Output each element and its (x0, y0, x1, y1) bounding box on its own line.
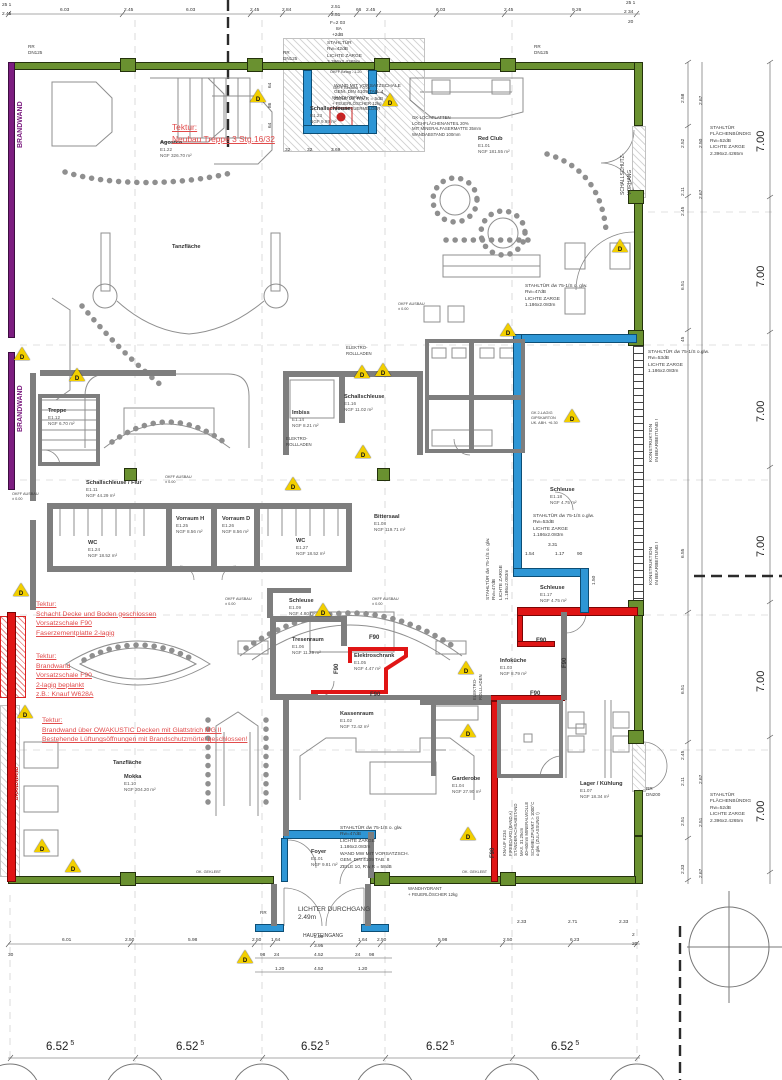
room-label: ImbissE1.14NGF 8.21 m² (292, 410, 319, 429)
dimension-label: 25 1 (626, 1, 635, 6)
dimension-label: 1.17 (555, 552, 564, 557)
grid-dimension-label: 7.00 (755, 401, 767, 422)
dimension-label: 2.51 (699, 818, 704, 827)
misc-label: OKFF Bestand + 0.06 (333, 86, 370, 91)
warning-triangle-icon: D (14, 347, 30, 361)
dimension-label: 1.20 (358, 967, 367, 972)
dimension-label: 98 (260, 953, 265, 958)
misc-label: RRDN200 (646, 786, 660, 798)
warning-triangle-icon: D (237, 950, 253, 964)
warning-triangle-icon: D (69, 368, 85, 382)
room-label: Tanzfläche (113, 760, 142, 767)
warning-triangle-icon: D (375, 363, 391, 377)
dimension-label: 2.50 (377, 938, 386, 943)
misc-label: BRANDWAND (16, 385, 25, 432)
dimension-label: 66 (356, 8, 361, 13)
grid-dimension-label: 7.00 (755, 801, 767, 822)
dimension-label: 1.64 (271, 938, 280, 943)
dimension-label: 2.45 (681, 207, 686, 216)
misc-label: KONSTRUKTIONIN BEARBEITUNG ! (649, 419, 661, 462)
dimension-label: 2.51 (331, 5, 340, 10)
f90-label: F90 (369, 635, 379, 641)
dimension-label: 2.52 (681, 139, 686, 148)
dimension-label: 2.71 (568, 920, 577, 925)
dimension-label: 64 (268, 123, 273, 128)
door-spec-note: STAHLTÜR dw 75-1/S o. glw.Rw=47dBLICHTE … (340, 826, 409, 871)
dimension-label: 2.67 (699, 96, 704, 105)
misc-label: ELEKTRO-ROLLLADEN (472, 674, 483, 700)
grid-span-label: 6.52 5 (551, 1040, 579, 1053)
dimension-label: 9.26 (572, 8, 581, 13)
dimension-label: 2.51 (331, 13, 340, 18)
misc-label: GK 2-LAGIGGIPSKARTONUK. ABH. +6.30 (531, 411, 558, 426)
room-label: TreppeE1.12NGF 6.70 m² (48, 408, 75, 427)
misc-label: BRANDWAND (14, 767, 21, 800)
misc-label: WANDHYDRANT+ FEUERLÖSCHER 12kg (408, 886, 458, 897)
dimension-label: 2.45 (250, 8, 259, 13)
tektur-note: Tektur:Brandwand über OWAKUSTIC Decken m… (42, 716, 247, 745)
dimension-label: 32 (307, 148, 312, 153)
warning-triangle-icon: D (458, 661, 474, 675)
door-spec-note: STAHLTÜR dw 75-1/S o.glw.Rw=53dBLICHTE Z… (648, 350, 709, 376)
room-label: SchleuseE1.18NGF 4.75 m² (550, 487, 577, 506)
warning-triangle-icon: D (13, 583, 29, 597)
dimension-label: 2.45 (366, 8, 375, 13)
room-label: Red ClubE1.01NGF 181.55 m² (478, 136, 510, 155)
room-label: SchleuseE1.17NGF 4.75 m² (540, 585, 567, 604)
labels-layer: AgosteaE1.22NGF 326.70 m²Red ClubE1.01NG… (0, 0, 782, 1080)
dimension-label: 6.01 (62, 938, 71, 943)
room-label: Schallschleuse / FlurE1.11NGF 44.29 m² (86, 480, 142, 499)
dimension-label: 2.45 (681, 751, 686, 760)
dimension-label: 1.50 (592, 576, 597, 585)
dimension-label: 2.33 (517, 920, 526, 925)
dimension-label: 2.50 (252, 938, 261, 943)
warning-triangle-icon: D (34, 839, 50, 853)
dimension-label: 64 (268, 83, 273, 88)
dimension-label: 32 (285, 148, 290, 153)
tektur-note: Tektur:Neubau Treppe 3 Stg.16/32 (172, 122, 275, 146)
f90-label: F90 (562, 658, 568, 668)
dimension-label: 2.67 (699, 190, 704, 199)
misc-label: RRDN125 (534, 44, 548, 56)
room-label: InfokücheE1.03NGF 8.79 m² (500, 658, 527, 677)
warning-triangle-icon: D (382, 93, 398, 107)
misc-label: SCHALLSCHUTZ-VORHANG (620, 154, 633, 195)
f90-label: F90 (530, 691, 540, 697)
warning-triangle-icon: D (355, 445, 371, 459)
room-label: GarderobeE1.04NGF 27.90 m² (452, 776, 481, 795)
warning-triangle-icon: D (315, 603, 331, 617)
dimension-label: 98 (369, 953, 374, 958)
f90-label: F90 (536, 638, 546, 644)
dimension-label: 8A (336, 27, 342, 32)
dimension-label: 3.69 (331, 148, 340, 153)
misc-label: OKFF Belag - 1.20 (330, 70, 362, 75)
dimension-label: 86 (268, 103, 273, 108)
dimension-label: 1.54 (525, 552, 534, 557)
dimension-label: 6.51 (681, 281, 686, 290)
dimension-label: 2.51 (681, 817, 686, 826)
dimension-label: 6.03 (436, 8, 445, 13)
dimension-label: 3.31 (548, 543, 557, 548)
dimension-label: 24 (274, 953, 279, 958)
misc-label: ELEKTRO-ROLLLADEN (286, 436, 312, 447)
dimension-label: 30 (8, 953, 13, 958)
warning-triangle-icon: D (460, 827, 476, 841)
misc-label: OKFF AUSBAU± 0.00 (165, 475, 192, 485)
misc-label: GK-LOCHPLATTENLOCHFLÄCHENANTEIL 20%MIT M… (412, 115, 481, 137)
door-spec-note: STAHLTÜR dw 75-1/S o. glw.Rw=47dBLICHTE … (525, 284, 587, 310)
dimension-label: 25 1 (2, 3, 11, 8)
room-label: BittersaalE1.08NGF 119.71 m² (374, 514, 405, 533)
misc-label: OKFF AUSBAU± 0.00 (398, 302, 425, 312)
dimension-label: 2.67 (699, 775, 704, 784)
grid-dimension-label: 7.00 (755, 131, 767, 152)
dimension-label: 2.11 (681, 777, 686, 786)
dimension-label: 6.51 (681, 685, 686, 694)
dimension-label: 1.20 (275, 967, 284, 972)
tektur-note: Tektur:Schacht Decke und Boden geschloss… (36, 600, 156, 638)
misc-label: OKFF AUSBAU± 0.00 (225, 597, 252, 607)
misc-label: KNAUF K234FIREBOARD (BAND A)STÄNDERACHSA… (502, 802, 541, 856)
room-label: TresenraumE1.06NGF 11.29 m² (292, 637, 324, 656)
grid-dimension-label: 7.00 (755, 536, 767, 557)
door-spec-note: STAHLTÜR dw 75-1/S o. glw.Rw=47dBLICHTE … (486, 538, 512, 600)
grid-span-label: 6.52 5 (176, 1040, 204, 1053)
dimension-label: 20 (628, 20, 633, 25)
grid-span-label: 6.52 5 (301, 1040, 329, 1053)
dimension-label: 2.84 (282, 8, 291, 13)
room-label: SchleuseE1.09NGF 4.80 m² (289, 598, 316, 617)
dimension-label: 2.33 (619, 920, 628, 925)
dimension-label: 5.98 (188, 938, 197, 943)
dimension-label: +2dB (332, 33, 343, 38)
misc-label: KONSTRUKTIONIN BEARBEITUNG ! (649, 542, 661, 585)
grid-dimension-label: 7.00 (755, 266, 767, 287)
warning-triangle-icon: D (354, 365, 370, 379)
dimension-label: 2.45 (2, 12, 11, 17)
dimension-label: 3.95 (314, 944, 323, 949)
dimension-label: 1.64 (358, 938, 367, 943)
warning-triangle-icon: D (65, 859, 81, 873)
room-label: Vorraum HE1.25NGF 8.56 m² (176, 516, 204, 535)
dimension-label: 6.03 (60, 8, 69, 13)
dimension-label: 20 (632, 942, 637, 947)
room-label: FoyerE1.01NGF 9.81 m² (311, 849, 338, 868)
grid-span-label: 6.52 5 (46, 1040, 74, 1053)
room-label: Vorraum DE1.26NGF 8.56 m² (222, 516, 250, 535)
misc-label: WANDHYDRANT+ FEUERLÖSCHER 12kg+ HANDFEUE… (332, 95, 382, 112)
warning-triangle-icon: D (285, 477, 301, 491)
door-spec-note: STAHLTÜRRw=42dBLICHTE ZARGE2.396x2.4265m (327, 41, 362, 67)
warning-triangle-icon: D (500, 323, 516, 337)
misc-label: ELEKTRO-ROLLLADEN (346, 345, 372, 356)
dimension-label: 2.67 (699, 869, 704, 878)
door-spec-note: STAHLTÜR dw 75-1/S o.glw.Rw=53dBLICHTE Z… (533, 514, 594, 540)
dimension-label: 2.69 (314, 935, 323, 940)
room-label: WCE1.27NGF 18.52 m² (296, 538, 325, 557)
misc-label: RR (260, 910, 267, 916)
warning-triangle-icon: D (612, 239, 628, 253)
misc-label: LICHTER DURCHGANG2.49m (298, 906, 370, 923)
f90-label: F90 (490, 848, 496, 858)
dimension-label: 5.98 (438, 938, 447, 943)
dimension-label: 45 (681, 337, 686, 342)
dimension-label: 2.11 (681, 187, 686, 196)
dimension-label: 2.58 (681, 94, 686, 103)
misc-label: OK. GEKLEBT (462, 870, 487, 875)
f90-label: F90 (370, 692, 380, 698)
dimension-label: 90 (577, 552, 582, 557)
warning-triangle-icon: D (564, 409, 580, 423)
dimension-label: 2 34 (624, 10, 633, 15)
room-label: Tanzfläche (172, 244, 201, 251)
warning-triangle-icon: D (460, 724, 476, 738)
dimension-label: 4.52 (314, 953, 323, 958)
dimension-label: 2.45 (124, 8, 133, 13)
room-label: WCE1.24NGF 18.52 m² (88, 540, 117, 559)
room-label: ElektroschrankE1.05NGF 4.47 m² (354, 653, 394, 672)
misc-label: OK. GEKLEBT (196, 870, 221, 875)
dimension-label: 6.23 (570, 938, 579, 943)
door-spec-note: STAHLTÜRFLÄCHENBÜNDIGRw=52dBLICHTE ZARGE… (710, 793, 751, 825)
misc-label: RRDN125 (283, 50, 297, 62)
dimension-label: 2 (632, 933, 635, 938)
warning-triangle-icon: D (17, 705, 33, 719)
room-label: SchallschleuseE1.16NGF 11.02 m² (344, 394, 384, 413)
dimension-label: 2.45 (504, 8, 513, 13)
warning-triangle-icon: D (250, 89, 266, 103)
misc-label: RRDN125 (28, 44, 42, 56)
misc-label: OKFF AUSBAU± 0.00 (372, 597, 399, 607)
tektur-note: Tektur:BrandwandVorsatzschale F902-lagig… (36, 652, 93, 700)
dimension-label: 2.50 (125, 938, 134, 943)
misc-label: BRANDWAND (16, 101, 25, 148)
grid-span-label: 6.52 5 (426, 1040, 454, 1053)
door-spec-note: STAHLTÜRFLÄCHENBÜNDIGRw=52dBLICHTE ZARGE… (710, 126, 751, 158)
dimension-label: 2.50 (503, 938, 512, 943)
dimension-label: 6.55 (681, 549, 686, 558)
floor-plan-canvas: AgosteaE1.22NGF 326.70 m²Red ClubE1.01NG… (0, 0, 782, 1080)
room-label: Lager / KühlungE1.07NGF 18.34 m² (580, 781, 623, 800)
room-label: MokkaE1.10NGF 204.20 m² (124, 774, 156, 793)
dimension-label: F=2 03 (330, 21, 345, 26)
f90-label: F90 (334, 664, 340, 674)
dimension-label: 6.03 (186, 8, 195, 13)
grid-dimension-label: 7.00 (755, 671, 767, 692)
dimension-label: 24 (355, 953, 360, 958)
room-label: KassenraumE1.02NGF 72.42 m² (340, 711, 374, 730)
dimension-label: 2.50 (699, 139, 704, 148)
dimension-label: 2.33 (681, 865, 686, 874)
dimension-label: 4.52 (314, 967, 323, 972)
misc-label: OKFF AUSBAU± 0.00 (12, 492, 39, 502)
